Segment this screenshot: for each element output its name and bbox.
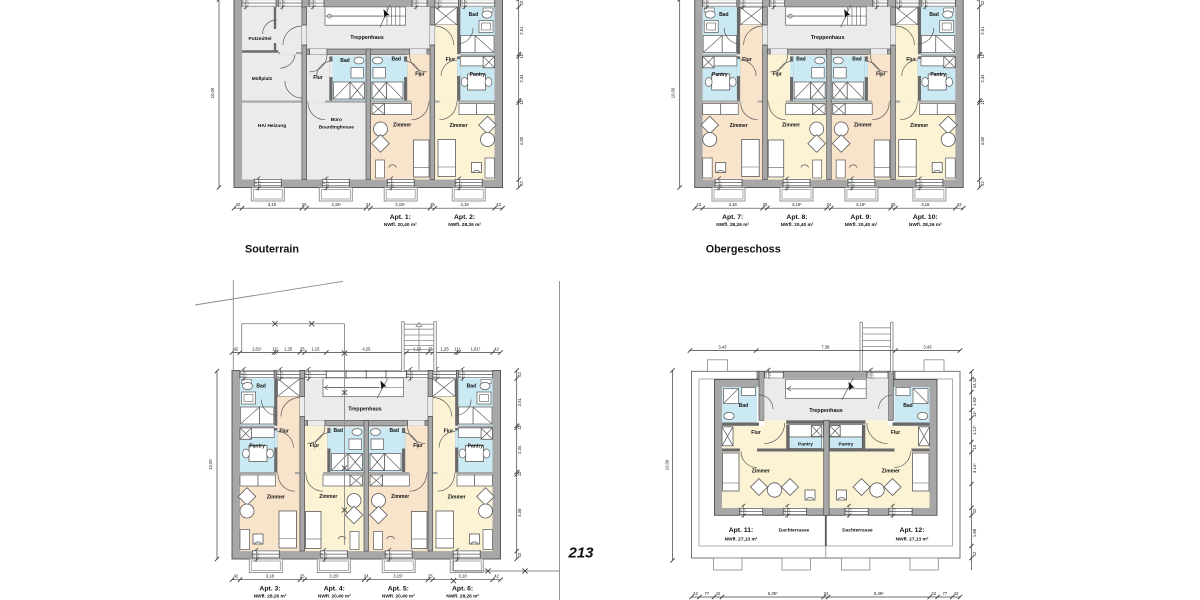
svg-text:2,13⁵: 2,13⁵ xyxy=(773,0,777,7)
svg-text:2,51: 2,51 xyxy=(980,26,985,35)
svg-text:Apt. 2:: Apt. 2: xyxy=(454,214,475,221)
svg-text:2,13⁵: 2,13⁵ xyxy=(787,507,791,515)
svg-text:NWfl. 28,26 m²: NWfl. 28,26 m² xyxy=(448,222,481,228)
svg-text:Pantry: Pantry xyxy=(798,441,813,447)
svg-text:2,13⁵: 2,13⁵ xyxy=(436,370,440,378)
svg-text:2,13⁵: 2,13⁵ xyxy=(706,0,710,7)
svg-text:Flur: Flur xyxy=(891,430,900,436)
svg-text:10,00: 10,00 xyxy=(210,87,215,98)
svg-text:Pantry: Pantry xyxy=(470,72,486,78)
svg-text:24: 24 xyxy=(824,591,829,596)
svg-text:Bad: Bad xyxy=(391,57,400,63)
svg-text:2,13⁵: 2,13⁵ xyxy=(313,0,317,7)
svg-text:Flur: Flur xyxy=(751,430,760,436)
svg-text:42: 42 xyxy=(494,347,499,352)
svg-text:Dachterrasse: Dachterrasse xyxy=(779,528,810,534)
svg-text:Flur: Flur xyxy=(313,75,322,81)
svg-text:42: 42 xyxy=(519,0,524,5)
svg-text:Apt. 3:: Apt. 3: xyxy=(259,585,280,592)
svg-text:4,08: 4,08 xyxy=(519,136,524,145)
svg-text:2,13⁵: 2,13⁵ xyxy=(848,507,852,515)
svg-text:NWfl. 20,40 m²: NWfl. 20,40 m² xyxy=(781,222,814,228)
svg-text:2,13⁵: 2,13⁵ xyxy=(919,180,923,188)
svg-text:2,13⁵: 2,13⁵ xyxy=(282,0,286,7)
svg-text:2,13⁵: 2,13⁵ xyxy=(391,180,395,188)
svg-text:2,13⁵: 2,13⁵ xyxy=(462,370,466,378)
svg-text:42: 42 xyxy=(716,591,721,596)
svg-text:5,39⁵: 5,39⁵ xyxy=(874,591,884,596)
svg-text:3,18: 3,18 xyxy=(268,202,277,207)
svg-text:42: 42 xyxy=(496,202,501,207)
svg-text:2,13⁵: 2,13⁵ xyxy=(464,0,468,7)
svg-text:1,15: 1,15 xyxy=(311,347,320,352)
svg-text:1,81⁵: 1,81⁵ xyxy=(471,347,481,352)
svg-text:24: 24 xyxy=(364,574,369,579)
svg-text:HA/ Heizung: HA/ Heizung xyxy=(258,123,286,129)
svg-text:2,13⁵: 2,13⁵ xyxy=(787,180,791,188)
svg-text:3,15⁵: 3,15⁵ xyxy=(395,202,405,207)
svg-text:11⁵: 11⁵ xyxy=(272,347,278,352)
svg-text:Zimmer: Zimmer xyxy=(448,495,466,501)
svg-text:1,88: 1,88 xyxy=(972,528,977,537)
svg-text:2,13⁵: 2,13⁵ xyxy=(326,180,330,188)
svg-text:42: 42 xyxy=(696,202,701,207)
svg-text:11⁵: 11⁵ xyxy=(517,470,522,476)
svg-text:10,00: 10,00 xyxy=(671,87,676,98)
svg-text:42: 42 xyxy=(980,0,985,5)
svg-text:24: 24 xyxy=(366,202,371,207)
svg-text:Pantry: Pantry xyxy=(839,441,854,447)
svg-text:Bad: Bad xyxy=(739,403,748,409)
svg-text:2,13⁵: 2,13⁵ xyxy=(308,370,312,378)
svg-text:2,51: 2,51 xyxy=(517,397,522,406)
svg-text:77: 77 xyxy=(704,591,709,596)
svg-text:2,13⁵: 2,13⁵ xyxy=(925,0,929,7)
svg-text:NWfl. 20,40 m²: NWfl. 20,40 m² xyxy=(382,593,415,599)
svg-text:Apt. 7:: Apt. 7: xyxy=(722,214,743,221)
svg-text:Zimmer: Zimmer xyxy=(854,123,872,129)
svg-text:Putzmittel: Putzmittel xyxy=(249,36,272,42)
svg-text:Bad: Bad xyxy=(929,12,938,18)
svg-text:3,18: 3,18 xyxy=(729,202,738,207)
svg-text:1,25: 1,25 xyxy=(441,347,450,352)
svg-text:3,15⁵: 3,15⁵ xyxy=(856,202,866,207)
svg-text:Zimmer: Zimmer xyxy=(910,123,928,129)
svg-text:4,08: 4,08 xyxy=(980,136,985,145)
svg-text:2,13⁵: 2,13⁵ xyxy=(719,180,723,188)
svg-text:3,14⁵: 3,14⁵ xyxy=(972,463,977,473)
svg-text:Apt. 9:: Apt. 9: xyxy=(850,214,871,221)
svg-text:Apt. 8:: Apt. 8: xyxy=(786,214,807,221)
svg-text:25: 25 xyxy=(300,574,305,579)
svg-text:Bad: Bad xyxy=(333,428,342,434)
svg-text:2,13⁵: 2,13⁵ xyxy=(459,180,463,188)
svg-text:Treppenhaus: Treppenhaus xyxy=(811,35,845,41)
svg-text:Bad: Bad xyxy=(796,57,805,63)
svg-text:1,81⁵: 1,81⁵ xyxy=(252,347,262,352)
svg-text:42: 42 xyxy=(517,372,522,377)
svg-text:2,13⁵: 2,13⁵ xyxy=(389,551,393,559)
svg-text:Bad: Bad xyxy=(852,57,861,63)
svg-text:25: 25 xyxy=(300,347,305,352)
svg-text:42: 42 xyxy=(972,551,977,556)
svg-text:Zimmer: Zimmer xyxy=(752,469,770,475)
svg-text:NWfl. 20,40 m²: NWfl. 20,40 m² xyxy=(384,222,417,228)
svg-text:42: 42 xyxy=(957,202,962,207)
svg-text:25: 25 xyxy=(428,574,433,579)
svg-text:3,18: 3,18 xyxy=(921,202,930,207)
svg-text:3,18: 3,18 xyxy=(266,574,275,579)
svg-text:213: 213 xyxy=(568,545,595,562)
svg-text:11⁵: 11⁵ xyxy=(519,98,524,104)
svg-text:42: 42 xyxy=(980,181,985,186)
svg-text:NWfl. 20,40 m²: NWfl. 20,40 m² xyxy=(318,593,351,599)
svg-text:Bad: Bad xyxy=(340,58,349,64)
svg-text:2,34: 2,34 xyxy=(517,445,522,454)
svg-text:Treppenhaus: Treppenhaus xyxy=(348,407,382,413)
svg-text:25: 25 xyxy=(891,202,896,207)
svg-text:3,15⁵: 3,15⁵ xyxy=(329,574,339,579)
svg-text:3,43: 3,43 xyxy=(923,345,932,350)
svg-text:Boardinghouse: Boardinghouse xyxy=(319,125,355,131)
svg-text:Zimmer: Zimmer xyxy=(730,123,748,129)
svg-text:25: 25 xyxy=(428,347,433,352)
svg-text:NWfl. 28,26 m²: NWfl. 28,26 m² xyxy=(909,222,942,228)
svg-text:42: 42 xyxy=(954,591,959,596)
svg-text:10: 10 xyxy=(972,444,977,449)
svg-text:42: 42 xyxy=(234,574,239,579)
svg-text:Zimmer: Zimmer xyxy=(450,123,468,129)
svg-text:2,13⁵: 2,13⁵ xyxy=(256,551,260,559)
svg-text:2,13⁵: 2,13⁵ xyxy=(245,0,249,7)
svg-text:10,00: 10,00 xyxy=(208,459,213,470)
svg-text:Müllplatz: Müllplatz xyxy=(252,76,273,82)
svg-text:10,00: 10,00 xyxy=(665,459,670,470)
svg-text:2,13⁵: 2,13⁵ xyxy=(280,370,284,378)
svg-text:Obergeschoss: Obergeschoss xyxy=(706,244,781,256)
svg-text:11⁵: 11⁵ xyxy=(519,52,524,58)
svg-text:3,18: 3,18 xyxy=(459,574,468,579)
svg-text:2,13⁵: 2,13⁵ xyxy=(324,551,328,559)
svg-text:Bad: Bad xyxy=(467,384,476,390)
svg-text:44,42: 44,42 xyxy=(972,377,977,388)
svg-text:2,13⁵: 2,13⁵ xyxy=(410,370,414,378)
svg-text:Zimmer: Zimmer xyxy=(391,494,409,500)
svg-text:NWfl. 27,13 m²: NWfl. 27,13 m² xyxy=(896,537,929,543)
svg-text:3,18: 3,18 xyxy=(461,202,470,207)
svg-text:2,13⁵: 2,13⁵ xyxy=(743,0,747,7)
svg-text:Büro: Büro xyxy=(331,117,342,123)
svg-text:2,13⁵: 2,13⁵ xyxy=(438,0,442,7)
svg-text:Apt. 10:: Apt. 10: xyxy=(913,214,938,221)
svg-text:42: 42 xyxy=(517,552,522,557)
svg-text:NWfl. 20,40 m²: NWfl. 20,40 m² xyxy=(845,222,878,228)
svg-text:Zimmer: Zimmer xyxy=(882,469,900,475)
svg-text:2,34: 2,34 xyxy=(519,74,524,83)
svg-text:Pantry: Pantry xyxy=(249,444,265,450)
svg-text:3,15⁵: 3,15⁵ xyxy=(331,202,341,207)
svg-text:Zimmer: Zimmer xyxy=(267,495,285,501)
svg-text:4,25: 4,25 xyxy=(362,347,371,352)
svg-text:3,15⁵: 3,15⁵ xyxy=(792,202,802,207)
svg-text:Pantry: Pantry xyxy=(930,72,946,78)
svg-text:42: 42 xyxy=(972,508,977,513)
svg-text:Pantry: Pantry xyxy=(468,444,484,450)
svg-text:3,43: 3,43 xyxy=(718,345,727,350)
svg-text:11⁵: 11⁵ xyxy=(972,411,977,417)
svg-text:42: 42 xyxy=(519,181,524,186)
svg-text:2,13⁵: 2,13⁵ xyxy=(457,551,461,559)
svg-text:Apt. 1:: Apt. 1: xyxy=(390,214,411,221)
svg-text:25: 25 xyxy=(430,202,435,207)
svg-text:Zimmer: Zimmer xyxy=(319,494,337,500)
svg-text:Bad: Bad xyxy=(389,428,398,434)
svg-text:2,34: 2,34 xyxy=(980,74,985,83)
svg-text:11⁵: 11⁵ xyxy=(980,52,985,58)
svg-text:42: 42 xyxy=(494,574,499,579)
svg-text:1,15: 1,15 xyxy=(413,347,422,352)
svg-text:5,39⁵: 5,39⁵ xyxy=(768,591,778,596)
svg-text:42: 42 xyxy=(693,591,698,596)
svg-text:2,51: 2,51 xyxy=(519,26,524,35)
svg-text:Souterrain: Souterrain xyxy=(245,244,299,256)
svg-text:NWfl. 27,13 m²: NWfl. 27,13 m² xyxy=(725,537,758,543)
svg-text:11⁵: 11⁵ xyxy=(454,347,460,352)
svg-text:1,12⁵: 1,12⁵ xyxy=(972,425,977,435)
svg-text:2,13⁵: 2,13⁵ xyxy=(258,180,262,188)
svg-text:Apt. 12:: Apt. 12: xyxy=(900,527,925,534)
svg-text:2,13⁵: 2,13⁵ xyxy=(743,507,747,515)
svg-text:NWfl. 28,26 m²: NWfl. 28,26 m² xyxy=(716,222,749,228)
svg-text:Bad: Bad xyxy=(719,12,728,18)
svg-text:11⁵: 11⁵ xyxy=(517,424,522,430)
svg-text:42: 42 xyxy=(236,202,241,207)
svg-text:NWfl. 28,26 m²: NWfl. 28,26 m² xyxy=(254,593,287,599)
svg-text:42: 42 xyxy=(931,591,936,596)
svg-text:25: 25 xyxy=(763,202,768,207)
svg-text:Apt. 5:: Apt. 5: xyxy=(388,585,409,592)
svg-text:2,13⁵: 2,13⁵ xyxy=(892,507,896,515)
svg-text:2,13⁵: 2,13⁵ xyxy=(416,0,420,7)
svg-text:Pantry: Pantry xyxy=(712,72,728,78)
svg-text:Zimmer: Zimmer xyxy=(393,123,411,129)
svg-text:2,13⁵: 2,13⁵ xyxy=(851,180,855,188)
svg-text:25: 25 xyxy=(302,202,307,207)
svg-text:1,25: 1,25 xyxy=(284,347,293,352)
svg-text:11⁵: 11⁵ xyxy=(980,98,985,104)
svg-text:Zimmer: Zimmer xyxy=(782,123,800,129)
svg-text:3,15⁵: 3,15⁵ xyxy=(393,574,403,579)
svg-text:Bad: Bad xyxy=(256,384,265,390)
svg-text:1,93⁵: 1,93⁵ xyxy=(972,396,977,406)
svg-text:Apt. 6:: Apt. 6: xyxy=(452,585,473,592)
svg-text:Apt. 4:: Apt. 4: xyxy=(324,585,345,592)
svg-text:77: 77 xyxy=(943,591,948,596)
svg-text:24: 24 xyxy=(827,202,832,207)
svg-text:NWfl. 28,26 m²: NWfl. 28,26 m² xyxy=(446,593,479,599)
svg-text:2,13⁵: 2,13⁵ xyxy=(243,370,247,378)
svg-text:Treppenhaus: Treppenhaus xyxy=(809,408,843,414)
svg-text:42: 42 xyxy=(234,347,239,352)
svg-text:4,08: 4,08 xyxy=(517,508,522,517)
svg-text:2,13⁵: 2,13⁵ xyxy=(768,371,772,379)
svg-text:Apt. 11:: Apt. 11: xyxy=(729,527,754,534)
svg-text:2,13⁵: 2,13⁵ xyxy=(876,0,880,7)
svg-text:Dachterrasse: Dachterrasse xyxy=(842,528,873,534)
svg-text:2,13⁵: 2,13⁵ xyxy=(870,371,874,379)
svg-text:Bad: Bad xyxy=(469,12,478,18)
svg-text:Treppenhaus: Treppenhaus xyxy=(350,35,384,41)
svg-text:7,39: 7,39 xyxy=(821,345,830,350)
svg-text:Bad: Bad xyxy=(903,403,912,409)
svg-text:2,13⁵: 2,13⁵ xyxy=(899,0,903,7)
